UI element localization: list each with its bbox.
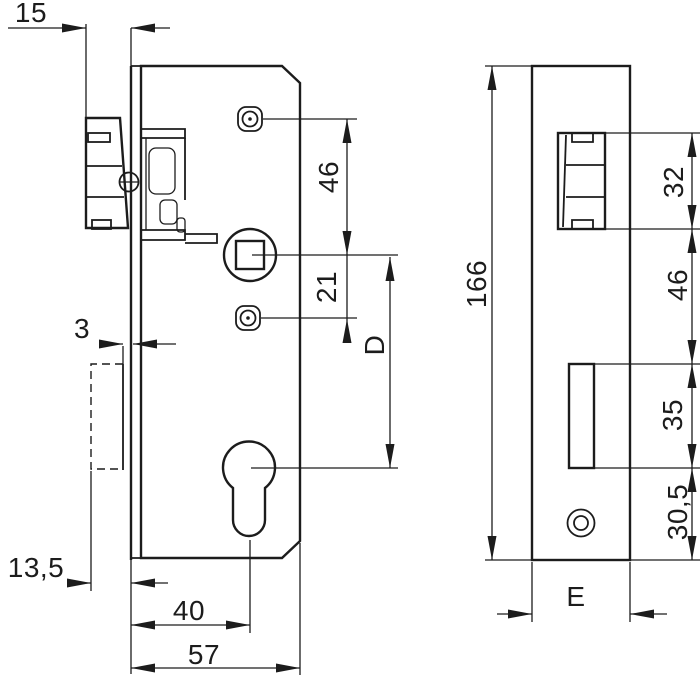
euro-cylinder-hole — [223, 442, 275, 536]
dim-case-depth: 57 — [131, 543, 300, 675]
dim-label-13-5: 13,5 — [8, 552, 65, 583]
front-view — [532, 66, 630, 560]
side-view-dimensions: 15 3 13,5 40 57 — [8, 0, 398, 675]
dim-screw-spindle-chain: 46 21 — [252, 119, 398, 343]
dim-label-21: 21 — [311, 271, 342, 303]
dim-deadbolt-throw: 13,5 — [8, 471, 168, 591]
dim-label-57: 57 — [188, 639, 220, 670]
dim-label-e: E — [566, 581, 585, 612]
dim-faceplate-width: E — [497, 562, 667, 622]
dim-label-3: 3 — [74, 313, 90, 344]
latch-front-view — [558, 133, 605, 229]
dim-label-15: 15 — [15, 0, 47, 28]
side-view — [86, 28, 300, 674]
lock-dimension-diagram: 15 3 13,5 40 57 — [0, 0, 700, 680]
deadbolt-extended-dashed — [91, 364, 123, 469]
fixing-screw-hole — [568, 510, 595, 537]
technical-drawing: 15 3 13,5 40 57 — [0, 0, 700, 680]
dim-label-166: 166 — [461, 260, 492, 308]
screw-boss-bottom — [236, 306, 260, 330]
dim-latch-projection: 15 — [8, 0, 170, 118]
faceplate-front — [532, 66, 630, 560]
screw-boss-top — [238, 107, 262, 131]
lock-case-outline — [141, 66, 300, 558]
dim-label-d: D — [359, 335, 390, 356]
dim-right-chain: 32 46 35 30,5 — [594, 133, 700, 560]
dim-label-30-5: 30,5 — [662, 484, 693, 541]
dim-label-35: 35 — [657, 399, 688, 431]
latch-bolt-lines — [86, 166, 124, 197]
dim-label-46-side: 46 — [313, 161, 344, 193]
dim-backset: 40 — [131, 540, 250, 633]
latch-bolt-head — [86, 118, 128, 228]
dim-faceplate-length: 166 — [461, 66, 532, 560]
dim-label-32: 32 — [658, 166, 689, 198]
faceplate-side-caps — [131, 66, 141, 558]
latch-notch-top — [88, 133, 110, 142]
dim-label-40: 40 — [173, 595, 205, 626]
latch-mechanism-internals — [141, 129, 217, 243]
deadbolt-front-view — [569, 364, 594, 468]
dim-label-46-front: 46 — [662, 269, 693, 301]
dim-deadbolt-retracted: 3 — [74, 313, 176, 364]
front-view-dimensions: 166 32 46 35 30,5 E — [461, 66, 700, 622]
